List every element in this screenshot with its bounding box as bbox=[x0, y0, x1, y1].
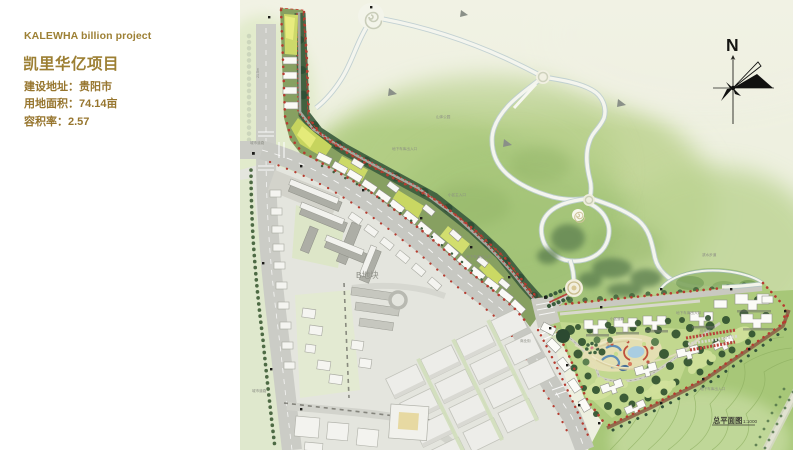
svg-text:B地块: B地块 bbox=[356, 270, 379, 280]
svg-text:1:1000: 1:1000 bbox=[743, 419, 757, 424]
svg-text:商业街: 商业街 bbox=[520, 338, 531, 343]
svg-text:N: N bbox=[726, 35, 739, 55]
svg-text:地下车库出入口: 地下车库出入口 bbox=[392, 146, 418, 151]
svg-text:地下车库出入口: 地下车库出入口 bbox=[466, 254, 492, 259]
svg-text:地下车库出入口: 地下车库出入口 bbox=[676, 310, 702, 315]
svg-text:小区道路: 小区道路 bbox=[610, 316, 625, 321]
svg-text:城市道路: 城市道路 bbox=[252, 388, 267, 393]
svg-text:山体公园: 山体公园 bbox=[436, 114, 451, 119]
svg-text:城市道路: 城市道路 bbox=[250, 140, 265, 145]
svg-text:总平面图: 总平面图 bbox=[713, 416, 743, 425]
svg-text:21.5m: 21.5m bbox=[256, 68, 260, 78]
svg-text:地下车库出入口: 地下车库出入口 bbox=[700, 386, 726, 391]
svg-text:小区主入口: 小区主入口 bbox=[448, 192, 466, 197]
svg-text:停车位: 停车位 bbox=[700, 328, 711, 333]
svg-text:滨水步道: 滨水步道 bbox=[702, 252, 717, 257]
